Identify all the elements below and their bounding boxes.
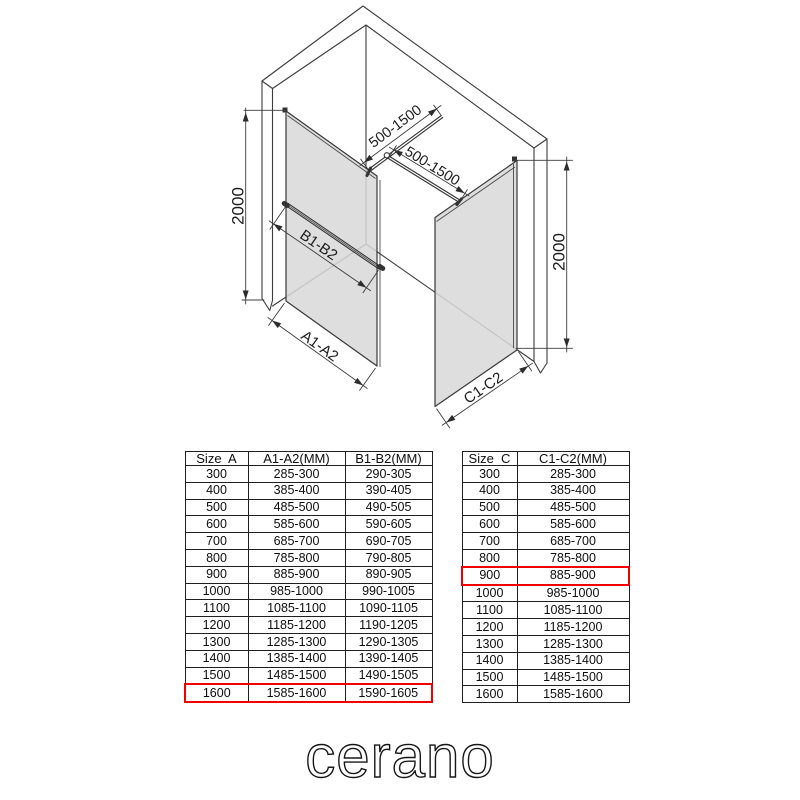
table-header-cell: C1-C2(MM) [517,452,629,466]
table-cell: 1200 [185,617,248,634]
table-cell: 1000 [462,585,517,602]
table-header-cell: Size C [462,452,517,466]
table-cell: 900 [185,566,248,583]
bar-connector [384,153,389,158]
table-cell: 885-900 [517,567,629,585]
table-cell: 1585-1600 [517,686,629,703]
table-cell: 900 [462,567,517,585]
table-cell: 585-600 [517,516,629,533]
table-cell: 985-1000 [248,583,345,600]
table-cell: 800 [185,549,248,566]
table-cell: 300 [462,466,517,483]
table-cell: 400 [462,482,517,499]
table-cell: 1400 [185,650,248,667]
table-cell: 1000 [185,583,248,600]
table-cell: 485-500 [517,499,629,516]
table-cell: 585-600 [248,516,345,533]
table-header-cell: B1-B2(MM) [345,452,432,466]
table-row: 600585-600 [462,516,629,533]
bar-end-cap [284,203,287,205]
table-header-cell: Size A [185,452,248,466]
table-cell: 990-1005 [345,583,432,600]
table-cell: 1490-1505 [345,667,432,684]
size-table-c: Size CC1-C2(MM)300285-300400385-40050048… [461,451,630,703]
table-cell: 985-1000 [517,585,629,602]
table-row: 600585-600590-605 [185,516,432,533]
table-cell: 1285-1300 [517,635,629,652]
table-cell: 785-800 [248,549,345,566]
table-cell: 1390-1405 [345,650,432,667]
table-row: 400385-400390-405 [185,482,432,499]
glass-panel-c [435,157,517,407]
table-cell: 1185-1200 [248,617,345,634]
table-header-row: Size AA1-A2(MM)B1-B2(MM) [185,452,432,466]
table-cell: 1500 [185,667,248,684]
table-cell: 1400 [462,652,517,669]
table-cell: 1100 [462,602,517,619]
table-cell: 290-305 [345,466,432,483]
table-cell: 385-400 [517,482,629,499]
table-cell: 1185-1200 [517,619,629,636]
table-cell: 1385-1400 [517,652,629,669]
table-row-highlighted: 16001585-16001590-1605 [185,684,432,702]
table-row-highlighted: 900885-900 [462,567,629,585]
right-wall-edges [534,139,547,363]
table-cell: 1190-1205 [345,617,432,634]
right-wall-cap [534,139,547,148]
table-cell: 1485-1500 [517,669,629,686]
table-row: 14001385-1400 [462,652,629,669]
table-row: 900885-900890-905 [185,566,432,583]
table-row: 300285-300 [462,466,629,483]
table-cell: 390-405 [345,482,432,499]
table-cell: 300 [185,466,248,483]
size-table-a: Size AA1-A2(MM)B1-B2(MM)300285-300290-30… [184,451,433,703]
glass-panel-a [283,108,381,368]
table-row: 500485-500490-505 [185,499,432,516]
table-cell: 600 [462,516,517,533]
table-row: 1000985-1000 [462,585,629,602]
table-cell: 500 [462,499,517,516]
table-row: 12001185-1200 [462,619,629,636]
table-row: 13001285-1300 [462,635,629,652]
left-wall-edges [262,81,273,301]
table-cell: 1300 [185,633,248,650]
table-cell: 590-605 [345,516,432,533]
table-cell: 890-905 [345,566,432,583]
bar-end-cap [380,266,383,268]
table-cell: 1200 [462,619,517,636]
table-row: 400385-400 [462,482,629,499]
dimension-height-right: 2000 [550,233,569,271]
table-cell: 1090-1105 [345,600,432,617]
table-cell: 600 [185,516,248,533]
table-row: 800785-800790-805 [185,549,432,566]
table-cell: 700 [462,533,517,550]
table-header-cell: A1-A2(MM) [248,452,345,466]
table-cell: 485-500 [248,499,345,516]
table-row: 700685-700690-705 [185,533,432,550]
table-row: 13001285-13001290-1305 [185,633,432,650]
table-cell: 1290-1305 [345,633,432,650]
table-row: 700685-700 [462,533,629,550]
table-row: 300285-300290-305 [185,466,432,483]
table-cell: 500 [185,499,248,516]
table-cell: 1085-1100 [517,602,629,619]
table-cell: 690-705 [345,533,432,550]
table-cell: 1600 [185,684,248,702]
left-wall-cap [262,81,273,89]
right-wall-bottom [534,362,547,374]
table-cell: 285-300 [248,466,345,483]
table-row: 15001485-1500 [462,669,629,686]
table-cell: 790-805 [345,549,432,566]
table-cell: 1385-1400 [248,650,345,667]
table-row: 14001385-14001390-1405 [185,650,432,667]
table-cell: 800 [462,549,517,566]
table-cell: 1485-1500 [248,667,345,684]
table-cell: 700 [185,533,248,550]
table-cell: 1600 [462,686,517,703]
table-cell: 685-700 [248,533,345,550]
table-row: 800785-800 [462,549,629,566]
dimension-height-left: 2000 [229,187,248,225]
table-cell: 1585-1600 [248,684,345,702]
dimension-brace-left: 500-1500 [366,102,425,151]
table-cell: 490-505 [345,499,432,516]
table-header-row: Size CC1-C2(MM) [462,452,629,466]
brand-logo: cerano [0,722,800,791]
table-cell: 1500 [462,669,517,686]
table-cell: 285-300 [517,466,629,483]
table-cell: 885-900 [248,566,345,583]
table-cell: 400 [185,482,248,499]
table-row: 1000985-1000990-1005 [185,583,432,600]
table-row: 11001085-1100 [462,602,629,619]
table-cell: 385-400 [248,482,345,499]
table-cell: 785-800 [517,549,629,566]
table-cell: 1100 [185,600,248,617]
table-cell: 1285-1300 [248,633,345,650]
table-cell: 1300 [462,635,517,652]
table-cell: 1590-1605 [345,684,432,702]
table-row: 11001085-11001090-1105 [185,600,432,617]
table-row: 16001585-1600 [462,686,629,703]
table-cell: 685-700 [517,533,629,550]
spec-sheet-page: 2000 2000 500-1500 500-1500 B1-B2 A1-A2 … [0,0,800,800]
table-row: 500485-500 [462,499,629,516]
table-cell: 1085-1100 [248,600,345,617]
table-row: 15001485-15001490-1505 [185,667,432,684]
table-row: 12001185-12001190-1205 [185,617,432,634]
